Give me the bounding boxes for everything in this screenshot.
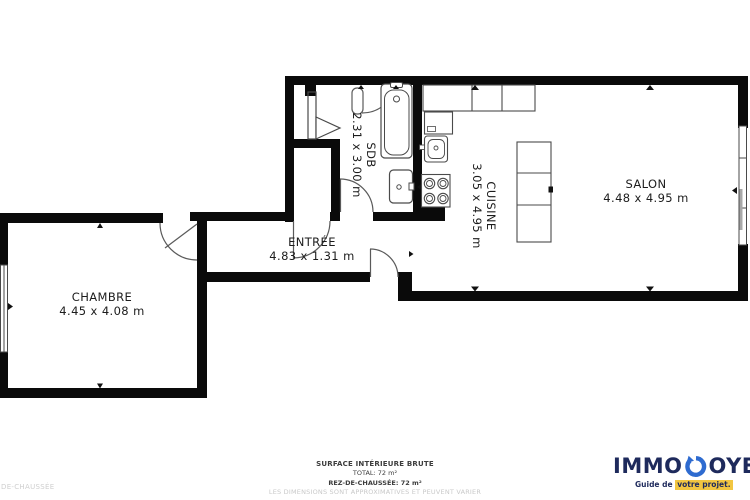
tagline-highlight: votre projet. (675, 480, 732, 490)
cuisine-dims: 3.05 x 4.95 m (470, 150, 484, 262)
sdb-name: SDB (364, 109, 378, 201)
room-label-chambre: CHAMBRE 4.45 x 4.08 m (27, 290, 177, 318)
floor-name-cropped: DE-CHAUSSÉE (1, 483, 54, 491)
floorplan-page: CHAMBRE 4.45 x 4.08 m ENTRÉE 4.83 x 1.31… (0, 0, 750, 500)
wall-closet-right (331, 148, 340, 216)
tick (97, 223, 103, 228)
logo-text-suffix: OYE (708, 456, 750, 477)
logo-tagline: Guide de votre projet. (635, 480, 750, 489)
kitchen-counter (423, 85, 535, 111)
wall-salon-bottom (404, 291, 748, 301)
wall-left-sdb (285, 85, 294, 222)
logo-wordmark: IMMO OYE (613, 455, 750, 478)
salon-window-slider (740, 189, 743, 230)
wall-stub-doors (330, 212, 340, 221)
wall-chambre-right (197, 213, 207, 398)
salon-name: SALON (571, 177, 721, 191)
tick (646, 85, 654, 90)
appliance-detail (428, 127, 436, 132)
kitchen-sink-drain (434, 146, 438, 150)
tick (8, 303, 13, 310)
wall-stub-closet (305, 85, 316, 96)
wall-entree-bottom (197, 272, 370, 282)
tick (409, 251, 414, 257)
logo-d-arrow-icon (683, 455, 707, 478)
tick (358, 85, 364, 89)
wall-chambre-left-upper (0, 213, 8, 265)
kitchen-faucet-icon (420, 145, 425, 150)
room-label-cuisine: CUISINE 3.05 x 4.95 m (470, 150, 498, 262)
cuisine-name: CUISINE (484, 150, 498, 262)
burner-inner (427, 196, 433, 202)
wall-right-upper (738, 76, 748, 128)
wall-chambre-top (0, 213, 163, 223)
salon-dims: 4.48 x 4.95 m (571, 191, 721, 205)
folding-door-icon (316, 117, 340, 139)
burner-inner (427, 181, 433, 187)
sdb-fixtures (381, 83, 414, 204)
tick (732, 187, 737, 194)
chambre-dims: 4.45 x 4.08 m (27, 304, 177, 318)
tick (471, 287, 479, 292)
surface-disclaimer: LES DIMENSIONS SONT APPROXIMATIVES ET PE… (0, 488, 750, 496)
wall-closet-top (285, 139, 340, 148)
island-handle (549, 187, 554, 193)
sdb-dims: 2.31 x 3.00 m (350, 109, 364, 201)
tagline-prefix: Guide de (635, 480, 675, 489)
burner-inner (440, 181, 446, 187)
wall-chambre-bottom (0, 388, 207, 398)
room-label-salon: SALON 4.48 x 4.95 m (571, 177, 721, 205)
washbasin-faucet-icon (409, 183, 414, 190)
tick (646, 287, 654, 292)
chambre-door-leaf (165, 224, 197, 248)
kitchen-island (517, 142, 551, 242)
entree-dims: 4.83 x 1.31 m (237, 249, 387, 263)
tick (97, 384, 103, 389)
wall-step (398, 272, 412, 301)
bathtub-drain (394, 96, 400, 102)
logo-text-prefix: IMMO (613, 456, 682, 477)
sliding-door-track (308, 92, 316, 139)
wall-top (285, 76, 748, 85)
washbasin-drain (397, 185, 401, 189)
agency-logo: IMMO OYE Guide de votre projet. (613, 455, 750, 489)
room-label-entree: ENTRÉE 4.83 x 1.31 m (237, 235, 387, 263)
burner-inner (440, 196, 446, 202)
chambre-name: CHAMBRE (27, 290, 177, 304)
entree-name: ENTRÉE (237, 235, 387, 249)
room-label-sdb: SDB 2.31 x 3.00 m (350, 109, 378, 201)
